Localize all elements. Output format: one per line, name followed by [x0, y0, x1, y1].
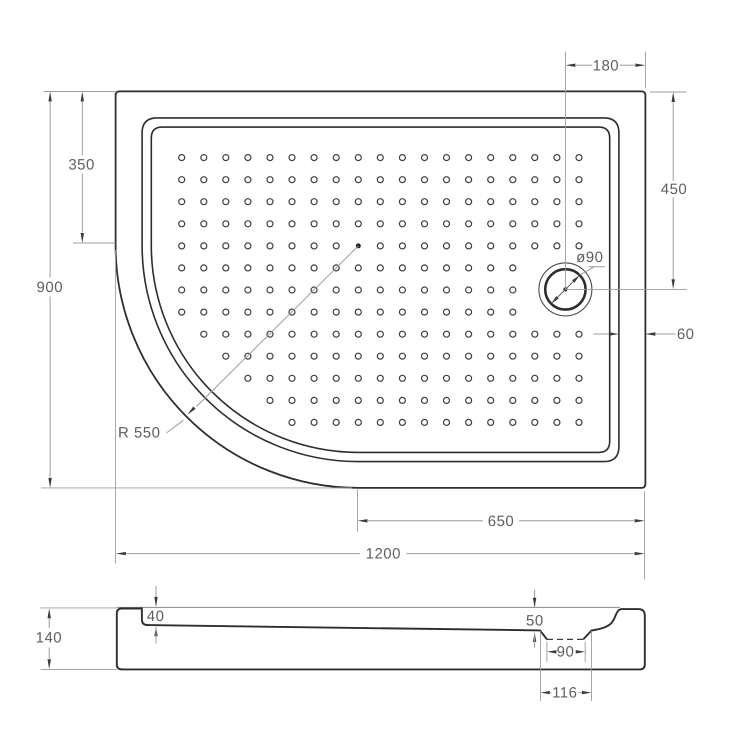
- svg-text:R 550: R 550: [118, 425, 161, 442]
- svg-text:650: 650: [488, 513, 515, 530]
- svg-text:1200: 1200: [366, 545, 401, 562]
- svg-text:140: 140: [36, 630, 63, 647]
- svg-text:900: 900: [37, 279, 64, 296]
- svg-text:116: 116: [552, 684, 577, 701]
- svg-text:90: 90: [557, 644, 575, 661]
- svg-text:50: 50: [526, 612, 544, 629]
- svg-text:ø90: ø90: [576, 249, 603, 266]
- svg-text:40: 40: [147, 608, 165, 625]
- svg-text:450: 450: [661, 181, 688, 198]
- svg-text:180: 180: [593, 57, 620, 74]
- svg-text:350: 350: [68, 157, 95, 174]
- svg-text:60: 60: [677, 326, 695, 343]
